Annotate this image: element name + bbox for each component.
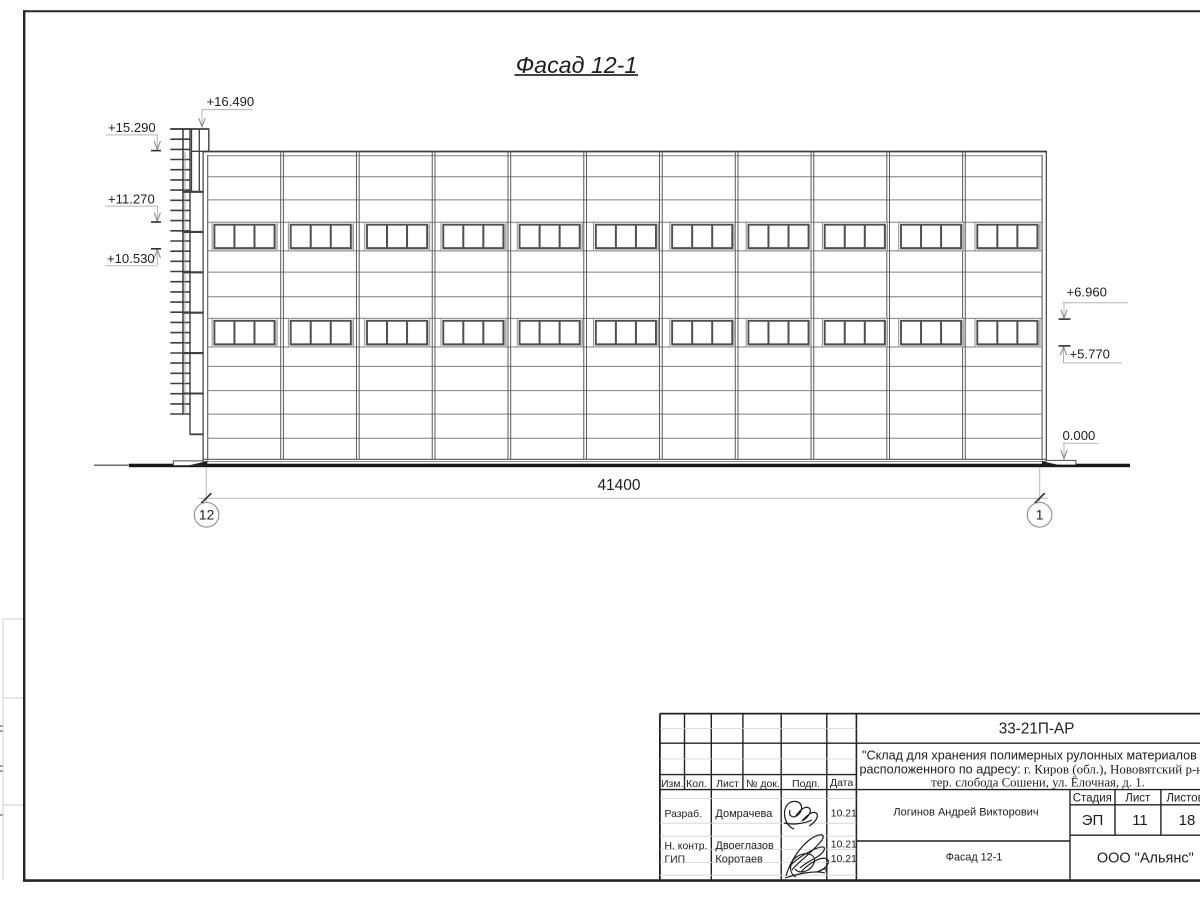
- svg-text:+16.490: +16.490: [207, 94, 255, 109]
- svg-text:+6.960: +6.960: [1067, 285, 1107, 300]
- svg-text:Домрачева: Домрачева: [715, 808, 773, 820]
- svg-text:0.000: 0.000: [1063, 428, 1096, 443]
- svg-text:10.21: 10.21: [831, 808, 857, 819]
- svg-text:Лист: Лист: [1125, 793, 1151, 805]
- svg-text:11: 11: [1132, 812, 1148, 829]
- svg-text:10.21: 10.21: [831, 854, 857, 865]
- svg-text:ЭП: ЭП: [1082, 812, 1104, 829]
- svg-text:Коротаев: Коротаев: [715, 853, 763, 865]
- svg-text:Фасад 12-1: Фасад 12-1: [946, 852, 1003, 864]
- svg-text:Кол.: Кол.: [686, 778, 707, 790]
- svg-text:1: 1: [1036, 508, 1044, 523]
- svg-text:ГИП: ГИП: [665, 854, 686, 865]
- svg-text:тер. слобода Сошени, ул. Ёлочн: тер. слобода Сошени, ул. Ёлочная, д. 1.: [931, 776, 1145, 790]
- svg-text:№ док.: № док.: [746, 778, 780, 790]
- svg-text:ООО "Альянс": ООО "Альянс": [1097, 850, 1194, 866]
- svg-text:Двоеглазов: Двоеглазов: [715, 840, 774, 852]
- svg-text:+11.270: +11.270: [108, 192, 155, 207]
- svg-text:+5.770: +5.770: [1070, 347, 1110, 362]
- svg-text:Листов: Листов: [1166, 793, 1200, 805]
- svg-text:+15.290: +15.290: [108, 120, 156, 135]
- svg-text:12: 12: [199, 508, 214, 523]
- svg-text:10.21: 10.21: [831, 840, 857, 851]
- svg-text:Лист: Лист: [716, 778, 739, 790]
- svg-text:Подп.: Подп.: [792, 778, 820, 790]
- svg-text:18: 18: [1179, 812, 1196, 829]
- svg-text:41400: 41400: [597, 477, 640, 494]
- svg-text:33-21П-АР: 33-21П-АР: [999, 720, 1075, 737]
- svg-text:Логинов Андрей Викторович: Логинов Андрей Викторович: [893, 806, 1038, 818]
- svg-text:+10.530: +10.530: [107, 251, 155, 266]
- svg-text:Н. контр.: Н. контр.: [665, 841, 708, 852]
- svg-text:"Склад для хранения полимерных: "Склад для хранения полимерных рулонных …: [862, 748, 1197, 762]
- svg-text:расположенного по адресу: г. К: расположенного по адресу: г. Киров (обл.…: [860, 761, 1200, 776]
- svg-text:Изм.: Изм.: [661, 778, 684, 790]
- svg-text:Стадия: Стадия: [1073, 793, 1112, 805]
- svg-text:Разраб.: Разраб.: [665, 808, 702, 820]
- svg-text:Дата: Дата: [830, 777, 853, 789]
